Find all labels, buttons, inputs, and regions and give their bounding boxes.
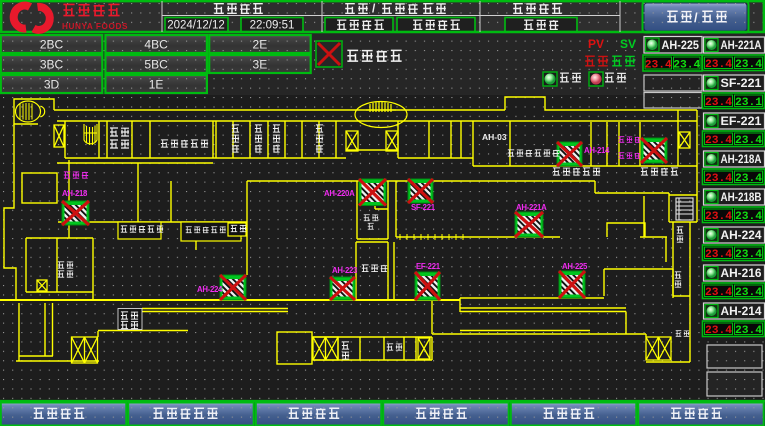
svg-text:23.4: 23.4 [735, 59, 762, 71]
svg-text:22:09:51: 22:09:51 [250, 20, 295, 32]
svg-text:23.4: 23.4 [705, 325, 732, 337]
svg-text:23.4: 23.4 [735, 135, 762, 147]
svg-text:SF-221: SF-221 [411, 203, 436, 212]
svg-text:23.1: 23.1 [735, 97, 762, 109]
svg-text:AH-221A: AH-221A [721, 40, 762, 52]
svg-text:23.4: 23.4 [735, 173, 762, 185]
svg-text:AH-218A: AH-218A [721, 154, 762, 166]
svg-text:2024/12/12: 2024/12/12 [167, 20, 225, 32]
svg-text:23.4: 23.4 [735, 325, 762, 337]
svg-text:AH-218B: AH-218B [721, 192, 762, 204]
svg-text:23.4: 23.4 [705, 211, 732, 223]
svg-text:AH-225: AH-225 [562, 262, 588, 271]
svg-text:AH-216: AH-216 [721, 268, 762, 280]
svg-text:23.4: 23.4 [705, 135, 732, 147]
svg-text:AH-221A: AH-221A [516, 203, 547, 212]
svg-text:23.4: 23.4 [705, 287, 732, 299]
svg-text:23.4: 23.4 [673, 60, 700, 72]
svg-text:AH-224: AH-224 [721, 230, 763, 242]
svg-text:AH-225: AH-225 [662, 40, 700, 52]
svg-text:23.4: 23.4 [705, 97, 732, 109]
svg-text:23.4: 23.4 [705, 59, 732, 71]
svg-text:1E: 1E [149, 78, 164, 92]
svg-text:EF-221: EF-221 [416, 262, 441, 271]
svg-text:AH-214: AH-214 [721, 306, 763, 318]
svg-text:23.4: 23.4 [735, 287, 762, 299]
svg-text:3BC: 3BC [40, 58, 64, 72]
svg-text:23.4: 23.4 [735, 211, 762, 223]
svg-text:SV: SV [620, 37, 636, 51]
svg-text:4BC: 4BC [144, 38, 168, 52]
svg-text:HUNYA FOODS: HUNYA FOODS [62, 22, 128, 31]
svg-text:AH-214: AH-214 [584, 146, 610, 155]
svg-text:23.4: 23.4 [645, 60, 672, 72]
svg-text:AH-223: AH-223 [332, 266, 358, 275]
svg-text:23.4: 23.4 [705, 173, 732, 185]
svg-text:2BC: 2BC [40, 38, 64, 52]
svg-text:3D: 3D [44, 78, 60, 92]
svg-text:23.4: 23.4 [735, 249, 762, 261]
svg-text:AH-220A: AH-220A [324, 189, 355, 198]
svg-text:5BC: 5BC [144, 58, 168, 72]
svg-text:/: / [694, 10, 698, 25]
svg-text:SF-221: SF-221 [721, 78, 763, 90]
svg-text:3E: 3E [253, 58, 268, 72]
svg-text:2E: 2E [253, 38, 268, 52]
svg-text:PV: PV [588, 37, 604, 51]
svg-text:23.4: 23.4 [705, 249, 732, 261]
svg-text:AH-218: AH-218 [62, 189, 88, 198]
svg-text:AH-224: AH-224 [197, 285, 223, 294]
svg-text:AH-03: AH-03 [482, 132, 507, 142]
svg-text:EF-221: EF-221 [721, 116, 763, 128]
